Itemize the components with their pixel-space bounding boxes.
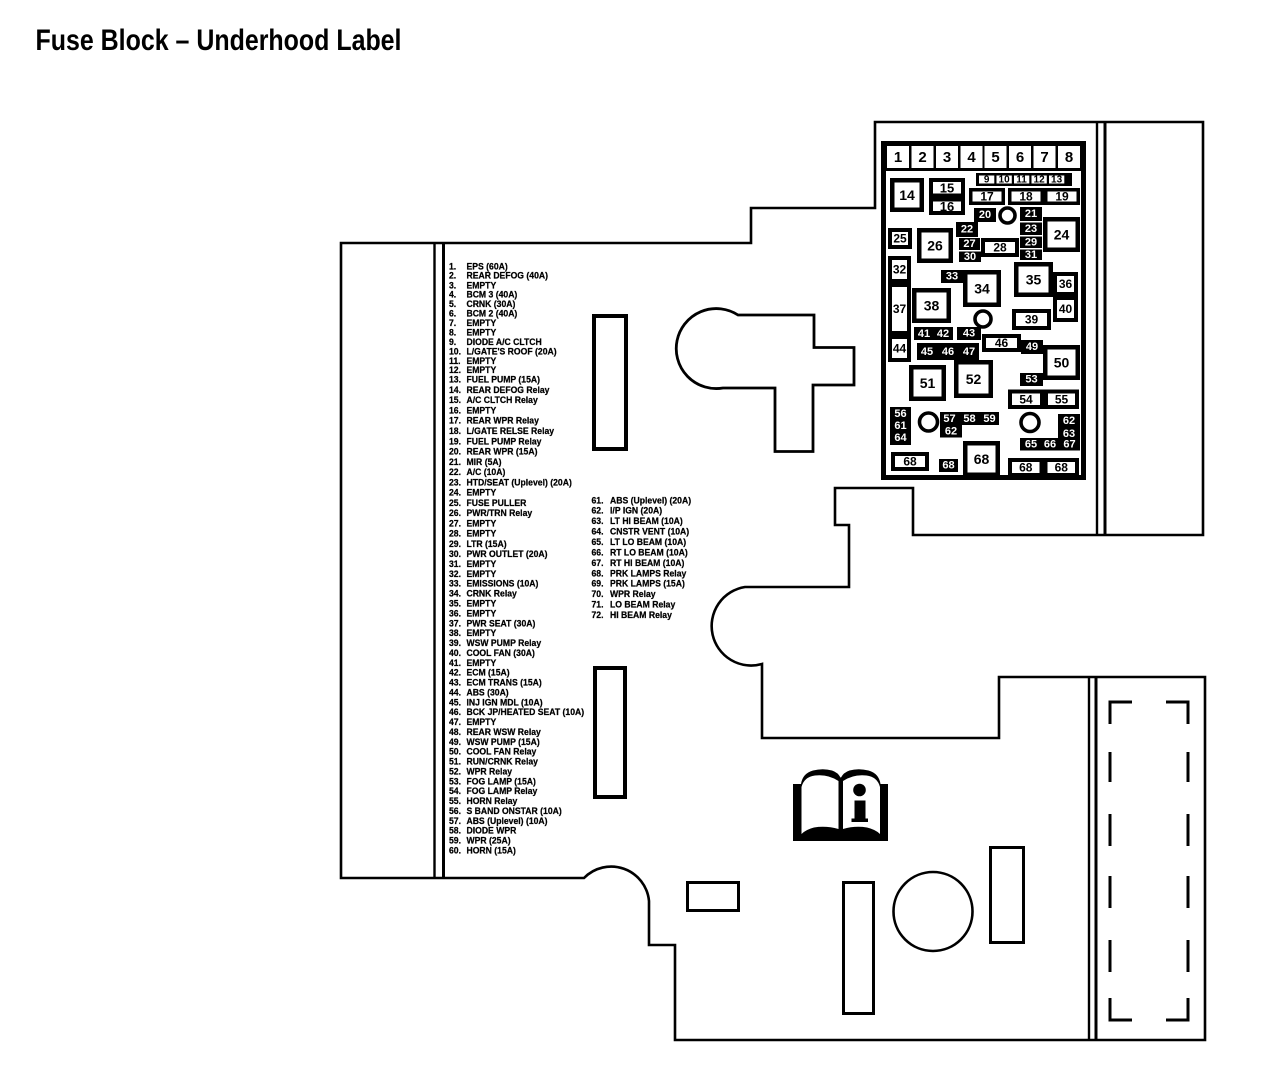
svg-text:62: 62: [945, 425, 957, 437]
svg-text:50: 50: [1054, 355, 1070, 371]
svg-text:EMPTY: EMPTY: [466, 487, 496, 498]
svg-text:20: 20: [979, 209, 991, 221]
svg-text:EMPTY: EMPTY: [466, 405, 496, 416]
svg-text:6: 6: [1016, 149, 1024, 166]
svg-text:PWR/TRN Relay: PWR/TRN Relay: [466, 508, 533, 519]
svg-text:29: 29: [1025, 236, 1037, 248]
svg-text:27: 27: [963, 238, 975, 250]
svg-text:27.: 27.: [449, 518, 461, 529]
svg-text:25.: 25.: [449, 497, 461, 508]
svg-text:PRK LAMPS (15A): PRK LAMPS (15A): [610, 578, 685, 589]
svg-text:68: 68: [1055, 461, 1069, 475]
svg-text:REAR WPR Relay: REAR WPR Relay: [466, 415, 539, 426]
svg-text:36: 36: [1059, 277, 1073, 291]
svg-text:29.: 29.: [449, 539, 461, 550]
svg-text:33: 33: [946, 271, 958, 283]
svg-text:23: 23: [1025, 223, 1037, 235]
svg-text:54: 54: [1019, 392, 1033, 406]
svg-text:66: 66: [1044, 439, 1056, 451]
svg-text:REAR WPR (15A): REAR WPR (15A): [466, 446, 537, 457]
svg-text:A/C (10A): A/C (10A): [466, 467, 505, 478]
svg-text:14.: 14.: [449, 385, 461, 396]
svg-text:26: 26: [927, 238, 943, 254]
svg-text:FUSE PULLER: FUSE PULLER: [466, 497, 526, 508]
svg-text:10: 10: [999, 174, 1011, 185]
svg-text:72.: 72.: [591, 610, 603, 621]
svg-text:LT HI BEAM (10A): LT HI BEAM (10A): [610, 516, 683, 527]
svg-text:59: 59: [983, 413, 995, 425]
svg-text:32: 32: [893, 263, 907, 277]
svg-text:ABS (Uplevel) (20A): ABS (Uplevel) (20A): [610, 495, 691, 506]
svg-text:3: 3: [943, 149, 951, 166]
svg-text:18: 18: [1019, 190, 1033, 204]
svg-text:LT LO BEAM (10A): LT LO BEAM (10A): [610, 537, 686, 548]
svg-text:14: 14: [899, 187, 915, 203]
svg-text:LO BEAM Relay: LO BEAM Relay: [610, 599, 676, 610]
svg-text:22.: 22.: [449, 467, 461, 478]
svg-text:64.: 64.: [591, 526, 603, 537]
svg-text:RT LO BEAM (10A): RT LO BEAM (10A): [610, 547, 688, 558]
svg-text:19: 19: [1055, 190, 1069, 204]
svg-text:EMPTY: EMPTY: [466, 518, 496, 529]
svg-text:12: 12: [1034, 174, 1046, 185]
svg-text:67: 67: [1063, 439, 1075, 451]
svg-text:PRK LAMPS Relay: PRK LAMPS Relay: [610, 568, 687, 579]
svg-text:68: 68: [974, 451, 990, 467]
svg-text:CNSTR VENT (10A): CNSTR VENT (10A): [610, 526, 689, 537]
svg-text:21: 21: [1025, 208, 1037, 220]
svg-text:18.: 18.: [449, 426, 461, 437]
svg-text:71.: 71.: [591, 599, 603, 610]
svg-text:FUEL PUMP Relay: FUEL PUMP Relay: [466, 436, 542, 447]
svg-text:17.: 17.: [449, 415, 461, 426]
svg-text:24: 24: [1054, 227, 1070, 243]
svg-text:49: 49: [1026, 341, 1038, 353]
svg-text:65: 65: [1025, 439, 1037, 451]
svg-text:58: 58: [963, 413, 975, 425]
svg-text:WPR Relay: WPR Relay: [610, 589, 656, 600]
svg-text:21.: 21.: [449, 456, 461, 467]
svg-text:38: 38: [924, 298, 940, 314]
svg-text:15.: 15.: [449, 395, 461, 406]
svg-text:MIR (5A): MIR (5A): [466, 456, 501, 467]
svg-text:1: 1: [894, 149, 902, 166]
svg-text:37: 37: [893, 302, 907, 316]
svg-text:53: 53: [1025, 374, 1037, 386]
svg-text:16: 16: [940, 199, 954, 214]
svg-text:66.: 66.: [591, 547, 603, 558]
svg-text:68: 68: [1019, 461, 1033, 475]
svg-text:61.: 61.: [591, 495, 603, 506]
svg-text:Fuse Block – Underhood Label: Fuse Block – Underhood Label: [36, 24, 402, 57]
svg-text:17: 17: [980, 190, 994, 204]
svg-text:62: 62: [1063, 415, 1075, 427]
svg-text:11: 11: [1016, 174, 1027, 185]
svg-text:HORN (15A): HORN (15A): [466, 845, 515, 856]
svg-text:23.: 23.: [449, 477, 461, 488]
svg-text:42: 42: [937, 328, 949, 340]
svg-text:63.: 63.: [591, 516, 603, 527]
svg-text:25: 25: [893, 232, 907, 246]
svg-text:HTD/SEAT (Uplevel) (20A): HTD/SEAT (Uplevel) (20A): [466, 477, 571, 488]
svg-text:68.: 68.: [591, 568, 603, 579]
svg-text:56: 56: [894, 408, 906, 420]
svg-text:28.: 28.: [449, 528, 461, 539]
svg-text:65.: 65.: [591, 537, 603, 548]
svg-text:47: 47: [963, 346, 975, 358]
svg-text:39: 39: [1025, 313, 1039, 327]
svg-text:28: 28: [993, 241, 1007, 255]
svg-text:2: 2: [918, 149, 926, 166]
svg-text:62.: 62.: [591, 505, 603, 516]
svg-text:30: 30: [964, 251, 976, 263]
svg-text:5: 5: [991, 149, 999, 166]
svg-text:44: 44: [893, 342, 907, 356]
svg-text:35: 35: [1026, 272, 1042, 288]
svg-text:60.: 60.: [449, 845, 461, 856]
svg-text:41: 41: [918, 328, 930, 340]
svg-text:64: 64: [894, 432, 907, 444]
svg-text:22: 22: [961, 224, 973, 236]
svg-text:4: 4: [967, 149, 976, 166]
svg-text:26.: 26.: [449, 508, 461, 519]
svg-text:24.: 24.: [449, 487, 461, 498]
svg-text:69.: 69.: [591, 578, 603, 589]
svg-text:55: 55: [1055, 392, 1069, 406]
svg-text:9: 9: [984, 174, 990, 185]
svg-text:HI BEAM Relay: HI BEAM Relay: [610, 610, 673, 621]
svg-text:34: 34: [974, 281, 990, 297]
svg-text:61: 61: [894, 420, 906, 432]
svg-text:8: 8: [1065, 149, 1073, 166]
svg-text:RT HI BEAM (10A): RT HI BEAM (10A): [610, 558, 684, 569]
svg-text:L/GATE RELSE Relay: L/GATE RELSE Relay: [466, 426, 555, 437]
svg-text:REAR DEFOG Relay: REAR DEFOG Relay: [466, 385, 550, 396]
svg-text:52: 52: [966, 371, 982, 387]
svg-text:15: 15: [940, 180, 954, 195]
svg-text:19.: 19.: [449, 436, 461, 447]
svg-text:68: 68: [903, 455, 917, 469]
svg-text:43: 43: [963, 328, 975, 340]
svg-text:67.: 67.: [591, 558, 603, 569]
svg-text:46: 46: [995, 336, 1009, 350]
svg-text:45: 45: [921, 346, 933, 358]
svg-text:13: 13: [1051, 174, 1063, 185]
svg-text:46: 46: [942, 346, 954, 358]
svg-text:FUEL PUMP (15A): FUEL PUMP (15A): [466, 374, 540, 385]
svg-text:31: 31: [1025, 249, 1037, 261]
svg-text:51: 51: [920, 375, 936, 391]
svg-text:16.: 16.: [449, 405, 461, 416]
svg-text:20.: 20.: [449, 446, 461, 457]
svg-text:40: 40: [1059, 302, 1073, 316]
svg-text:57: 57: [943, 413, 955, 425]
svg-text:A/C CLTCH Relay: A/C CLTCH Relay: [466, 395, 538, 406]
svg-text:68: 68: [942, 460, 954, 472]
svg-text:70.: 70.: [591, 589, 603, 600]
svg-text:I/P IGN (20A): I/P IGN (20A): [610, 505, 662, 516]
svg-text:13.: 13.: [449, 374, 461, 385]
svg-text:7: 7: [1040, 149, 1048, 166]
svg-text:LTR (15A): LTR (15A): [466, 539, 506, 550]
svg-text:EMPTY: EMPTY: [466, 528, 496, 539]
